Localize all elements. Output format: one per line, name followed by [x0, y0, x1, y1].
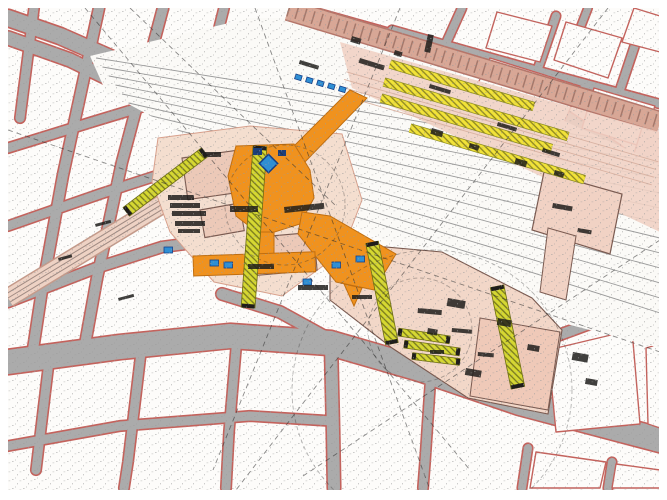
station-area-map [0, 0, 667, 500]
noise-layer [8, 8, 659, 490]
plan-map-page [0, 0, 667, 500]
margin-left [0, 0, 8, 500]
margin-bottom [0, 490, 667, 500]
margin-top [0, 0, 667, 8]
margin-right [659, 0, 667, 500]
cadastral-noise [8, 8, 659, 490]
